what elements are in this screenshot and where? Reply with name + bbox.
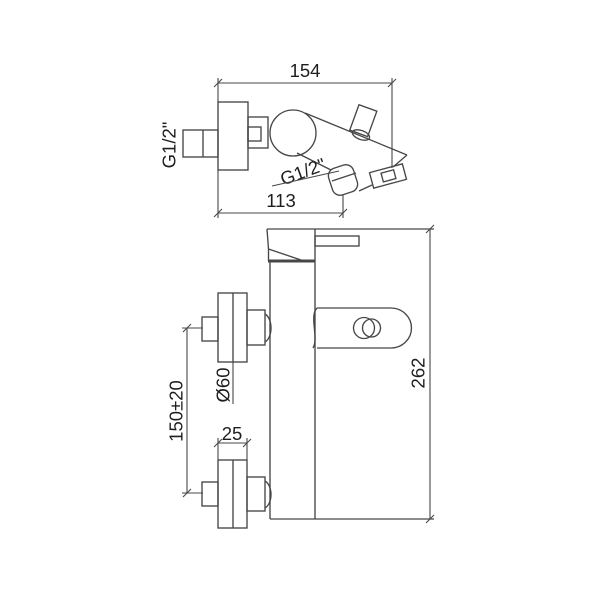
inlet-pipe [183,130,218,157]
wall-plate [218,102,248,170]
faucet-technical-drawing: 154 [0,0,600,600]
bracket-outline [317,308,411,348]
cartridge-body [270,110,316,156]
spout-thread-text: G1/2" [277,154,328,190]
head-left-edge [267,229,269,249]
aerator-hole [381,170,396,182]
diameter-label-text: Ø60 [213,368,234,403]
dim-262-label: 262 [408,358,429,389]
dim-113-label: 113 [266,190,296,211]
label-escutcheon-diameter: Ø60 [213,362,234,404]
spout-underside-diagonal [269,249,302,260]
dim-150-label: 150±20 [166,380,187,442]
bracket-knob-inner [363,319,381,337]
dim-150: 150±20 [166,324,204,497]
union-nut [247,477,265,511]
spout-link-line [359,185,372,191]
handle-base [351,128,371,143]
union-nut [247,310,265,345]
wall-union-bottom [202,460,271,528]
dim-262: 262 [408,225,435,523]
body-connector-notch [248,127,261,141]
inlet-nipple [202,317,218,341]
shower-bracket [313,308,411,348]
inlet-nipple [202,482,218,506]
top-view: 154 [159,60,408,218]
dim-25: 25 [214,423,251,460]
wall-connection-top [183,102,268,170]
dim-25-label: 25 [222,423,243,444]
wall-union-top [202,293,271,362]
drawing-canvas: 154 [0,0,600,600]
bracket-knob-outer [354,318,375,339]
body-connector [248,117,268,148]
dim-154-label: 154 [290,60,321,81]
wall-thread-label: G1/2" [159,122,180,169]
handle-lever-front [315,236,359,246]
aerator-block [370,164,407,188]
front-view: 262 150±20 25 [166,225,435,528]
spout-shank [326,163,359,198]
spout-shank-joint [332,173,356,181]
